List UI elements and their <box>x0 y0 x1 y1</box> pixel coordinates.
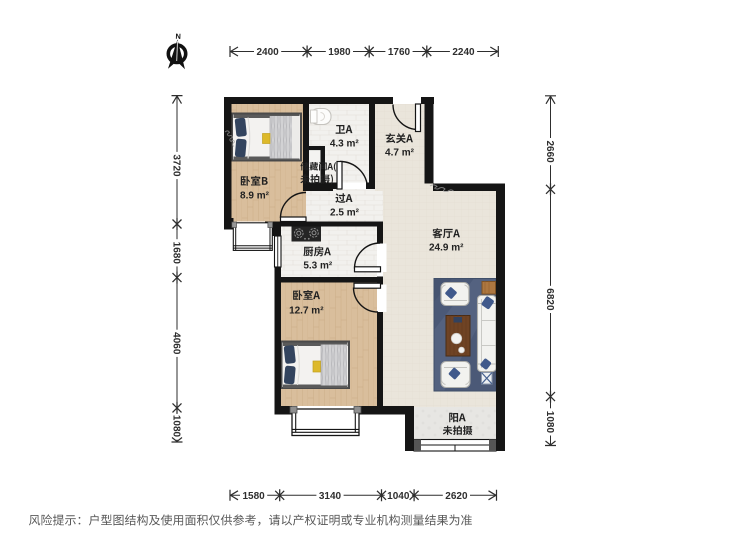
svg-text:1080: 1080 <box>544 411 555 434</box>
svg-text:3140: 3140 <box>319 491 342 502</box>
svg-text:2240: 2240 <box>452 47 475 58</box>
svg-text:6820: 6820 <box>544 288 555 311</box>
svg-text:2660: 2660 <box>544 140 555 163</box>
svg-text:2620: 2620 <box>445 491 468 502</box>
svg-text:4.3 m²: 4.3 m² <box>330 138 360 149</box>
svg-text:1980: 1980 <box>328 47 351 58</box>
svg-text:4060: 4060 <box>170 332 181 355</box>
svg-text:8.9 m²: 8.9 m² <box>240 190 270 201</box>
svg-text:1040: 1040 <box>387 491 410 502</box>
svg-text:1580: 1580 <box>242 491 265 502</box>
svg-text:2.5 m²: 2.5 m² <box>330 208 360 219</box>
svg-text:4.7 m²: 4.7 m² <box>385 147 415 158</box>
svg-text:1080: 1080 <box>170 415 181 438</box>
svg-text:24.9 m²: 24.9 m² <box>429 242 464 253</box>
svg-text:1680: 1680 <box>170 242 181 265</box>
svg-text:3720: 3720 <box>170 154 181 177</box>
svg-text:N: N <box>175 32 181 41</box>
svg-text:12.7 m²: 12.7 m² <box>289 305 324 316</box>
svg-text:5.3 m²: 5.3 m² <box>303 261 333 272</box>
svg-text:1760: 1760 <box>388 47 411 58</box>
svg-text:2400: 2400 <box>256 47 279 58</box>
